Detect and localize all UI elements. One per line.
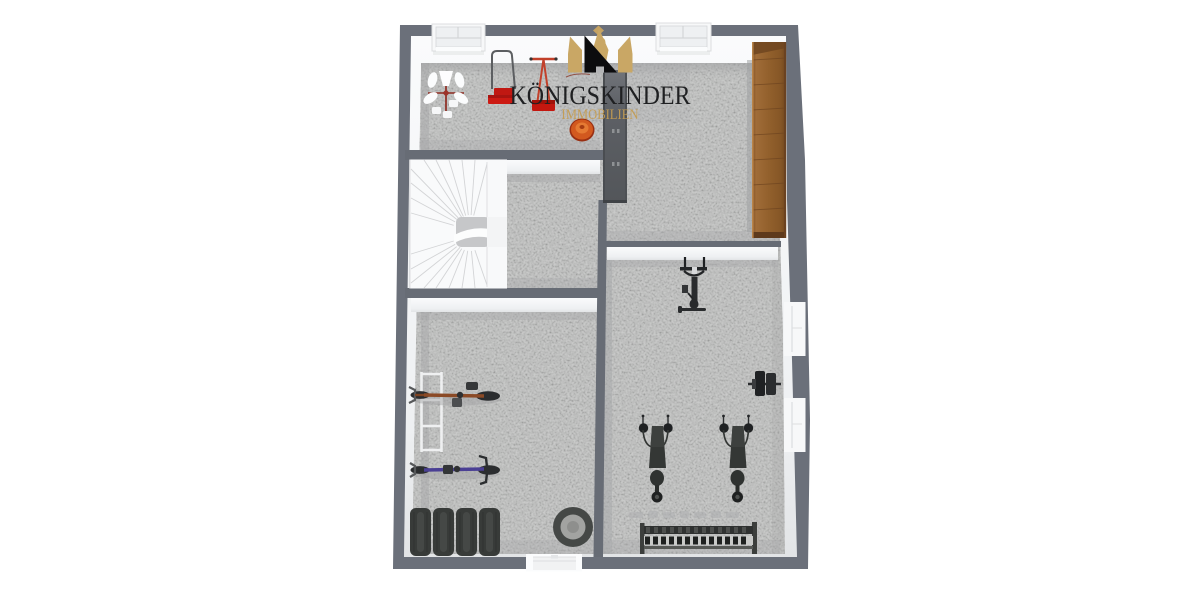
svg-text:IMMOBILIEN: IMMOBILIEN <box>562 107 639 123</box>
svg-text:KÖNIGSKINDER: KÖNIGSKINDER <box>510 80 691 110</box>
